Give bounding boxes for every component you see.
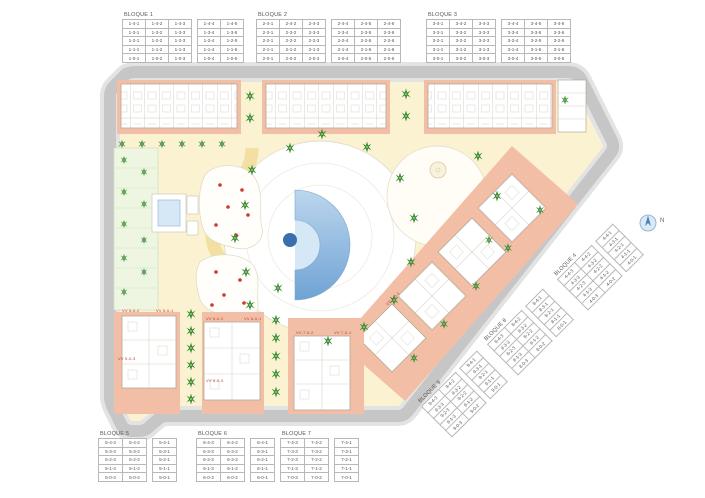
unit-cell: 3-2-5 [525, 37, 548, 46]
unit-cell: 1-3-2 [146, 28, 169, 37]
north-label: N [660, 218, 664, 224]
unit-table: 2-4-12-4-22-4-32-3-12-3-22-3-32-2-12-2-2… [256, 19, 326, 63]
unit-cell: 3-0-1 [427, 54, 450, 63]
unit-cell: 1-4-1 [123, 20, 146, 29]
unit-cell: 7-0-2 [305, 473, 329, 482]
unit-cell: 2-4-6 [378, 20, 401, 29]
unit-cell: 5-3-1 [153, 447, 177, 456]
unit-cell: 2-1-4 [332, 45, 355, 54]
unit-cell: 7-3-2 [305, 447, 329, 456]
unit-cell: 1-0-3 [169, 54, 192, 63]
unit-cell: 5-2-3 [99, 456, 123, 465]
unit-cell: 2-4-4 [332, 20, 355, 29]
unit-cell: 5-2-2 [123, 456, 147, 465]
unit-cell: 3-1-2 [450, 45, 473, 54]
unit-cell: 1-4-2 [146, 20, 169, 29]
unit-cell: 7-4-3 [281, 439, 305, 448]
block-title: BLOQUE 3 [428, 12, 571, 18]
unit-cell: 3-4-4 [502, 20, 525, 29]
unit-cell: 1-1-4 [198, 45, 221, 54]
unit-label: VV 6-0-3 [206, 378, 223, 383]
bloque-3-building [428, 84, 552, 128]
unit-cell: 2-1-3 [303, 45, 326, 54]
unit-cell: 3-4-6 [548, 20, 571, 29]
block-title: BLOQUE 2 [258, 12, 401, 18]
unit-cell: 1-0-1 [123, 54, 146, 63]
unit-cell: 3-1-6 [548, 45, 571, 54]
unit-cell: 1-4-3 [169, 20, 192, 29]
unit-cell: 6-0-2 [221, 473, 245, 482]
unit-cell: 5-4-3 [99, 439, 123, 448]
unit-cell: 2-2-6 [378, 37, 401, 46]
unit-cell: 5-3-3 [99, 447, 123, 456]
unit-table: 6-4-36-4-26-3-36-3-26-2-36-2-26-1-36-1-2… [196, 438, 245, 482]
unit-cell: 3-0-5 [525, 54, 548, 63]
unit-cell: 3-3-3 [473, 28, 496, 37]
block-title: BLOQUE 6 [198, 431, 275, 437]
unit-cell: 6-4-1 [251, 439, 275, 448]
small-pool [158, 200, 180, 226]
unit-cell: 3-0-4 [502, 54, 525, 63]
unit-cell: 3-0-3 [473, 54, 496, 63]
unit-cell: 2-0-5 [355, 54, 378, 63]
bloque-6-building [204, 322, 260, 400]
bloque-1-building [121, 84, 237, 128]
unit-cell: 2-4-3 [303, 20, 326, 29]
unit-cell: 1-0-2 [146, 54, 169, 63]
unit-cell: 1-0-4 [198, 54, 221, 63]
unit-cell: 2-1-6 [378, 45, 401, 54]
unit-cell: 6-2-1 [251, 456, 275, 465]
unit-cell: 5-0-2 [123, 473, 147, 482]
unit-cell: 6-2-2 [221, 456, 245, 465]
unit-cell: 6-2-3 [197, 456, 221, 465]
unit-cell: 6-1-1 [251, 464, 275, 473]
bottom-building-plots [114, 312, 364, 414]
compass-icon [638, 212, 678, 234]
bloque-6-table: BLOQUE 66-4-36-4-26-3-36-3-26-2-36-2-26-… [196, 431, 275, 482]
unit-cell: 5-3-2 [123, 447, 147, 456]
unit-cell: 2-3-5 [355, 28, 378, 37]
unit-cell: 2-3-4 [332, 28, 355, 37]
bloque-2-table: BLOQUE 22-4-12-4-22-4-32-3-12-3-22-3-32-… [256, 12, 401, 63]
unit-cell: 1-4-5 [221, 20, 244, 29]
unit-cell: 2-0-2 [280, 54, 303, 63]
unit-table: 6-4-16-3-16-2-16-1-16-0-1 [250, 438, 275, 482]
unit-cell: 7-1-3 [281, 464, 305, 473]
unit-table: 5-4-35-4-25-3-35-3-25-2-35-2-25-1-35-1-2… [98, 438, 147, 482]
unit-cell: 7-0-1 [335, 473, 359, 482]
unit-cell: 6-3-2 [221, 447, 245, 456]
unit-cell: 3-2-3 [473, 37, 496, 46]
unit-cell: 3-2-6 [548, 37, 571, 46]
unit-cell: 1-3-3 [169, 28, 192, 37]
unit-cell: 1-3-1 [123, 28, 146, 37]
unit-cell: 6-4-2 [221, 439, 245, 448]
unit-cell: 3-0-6 [548, 54, 571, 63]
unit-cell: 3-1-3 [473, 45, 496, 54]
unit-label: VV 5-0-2 [122, 308, 139, 313]
unit-cell: 6-3-3 [197, 447, 221, 456]
unit-label: VV 7-0-2 [296, 330, 313, 335]
unit-label: VV 7-0-1 [334, 330, 351, 335]
bloque-1-table: BLOQUE 11-4-11-4-21-4-31-3-11-3-21-3-31-… [122, 12, 244, 63]
unit-label: VV 6-0-1 [244, 316, 261, 321]
unit-label: VV 5-0-3 [118, 356, 135, 361]
unit-cell: 1-2-5 [221, 37, 244, 46]
north-compass: N [638, 212, 678, 234]
unit-cell: 1-2-2 [146, 37, 169, 46]
unit-cell: 2-1-5 [355, 45, 378, 54]
unit-cell: 1-0-5 [221, 54, 244, 63]
unit-cell: 1-1-5 [221, 45, 244, 54]
unit-table: 5-4-15-3-15-2-15-1-15-0-1 [152, 438, 177, 482]
unit-cell: 6-0-3 [197, 473, 221, 482]
bloque-7-table: BLOQUE 77-4-37-4-27-3-37-3-27-2-37-2-27-… [280, 431, 359, 482]
unit-cell: 2-2-2 [280, 37, 303, 46]
unit-cell: 1-4-4 [198, 20, 221, 29]
unit-label: VV 5-0-1 [156, 308, 173, 313]
unit-cell: 6-4-3 [197, 439, 221, 448]
unit-cell: 3-3-4 [502, 28, 525, 37]
unit-cell: 6-1-3 [197, 464, 221, 473]
unit-cell: 2-0-4 [332, 54, 355, 63]
unit-cell: 2-2-1 [257, 37, 280, 46]
block-title: BLOQUE 1 [124, 12, 244, 18]
unit-cell: 5-4-2 [123, 439, 147, 448]
unit-cell: 5-0-1 [153, 473, 177, 482]
unit-cell: 2-3-1 [257, 28, 280, 37]
block-title: BLOQUE 5 [100, 431, 177, 437]
unit-cell: 3-2-1 [427, 37, 450, 46]
unit-cell: 7-1-1 [335, 464, 359, 473]
unit-table: 1-4-41-4-51-3-41-3-51-2-41-2-51-1-41-1-5… [197, 19, 244, 63]
bloque-2-building [266, 84, 386, 128]
unit-cell: 3-1-5 [525, 45, 548, 54]
unit-cell: 2-2-4 [332, 37, 355, 46]
site-plan-canvas: BLOQUE 11-4-11-4-21-4-31-3-11-3-21-3-31-… [0, 0, 705, 498]
unit-cell: 1-1-3 [169, 45, 192, 54]
unit-cell: 6-3-1 [251, 447, 275, 456]
unit-cell: 3-3-2 [450, 28, 473, 37]
unit-cell: 2-3-2 [280, 28, 303, 37]
unit-cell: 7-2-2 [305, 456, 329, 465]
unit-cell: 5-0-3 [99, 473, 123, 482]
unit-cell: 2-2-3 [303, 37, 326, 46]
jacuzzi-circle [283, 233, 297, 247]
bloque-5-table: BLOQUE 55-4-35-4-25-3-35-3-25-2-35-2-25-… [98, 431, 177, 482]
unit-cell: 1-2-1 [123, 37, 146, 46]
unit-cell: 7-4-1 [335, 439, 359, 448]
unit-cell: 5-1-3 [99, 464, 123, 473]
top-building-plots [117, 80, 586, 134]
unit-cell: 7-3-3 [281, 447, 305, 456]
unit-cell: 7-0-3 [281, 473, 305, 482]
unit-label: VV 6-0-2 [206, 316, 223, 321]
unit-cell: 7-4-2 [305, 439, 329, 448]
unit-table: 2-4-42-4-52-4-62-3-42-3-52-3-62-2-42-2-5… [331, 19, 401, 63]
unit-cell: 3-2-4 [502, 37, 525, 46]
unit-cell: 5-4-1 [153, 439, 177, 448]
unit-cell: 3-3-5 [525, 28, 548, 37]
unit-cell: 7-2-3 [281, 456, 305, 465]
unit-cell: 1-1-1 [123, 45, 146, 54]
unit-cell: 3-0-2 [450, 54, 473, 63]
bloque-7-building [294, 336, 350, 410]
unit-cell: 3-4-5 [525, 20, 548, 29]
unit-cell: 6-1-2 [221, 464, 245, 473]
unit-cell: 7-1-2 [305, 464, 329, 473]
unit-table: 1-4-11-4-21-4-31-3-11-3-21-3-31-2-11-2-2… [122, 19, 192, 63]
unit-cell: 1-2-4 [198, 37, 221, 46]
unit-table: 7-4-17-3-17-2-17-1-17-0-1 [334, 438, 359, 482]
unit-cell: 3-3-6 [548, 28, 571, 37]
unit-cell: 5-2-1 [153, 456, 177, 465]
unit-cell: 3-4-3 [473, 20, 496, 29]
unit-cell: 3-4-1 [427, 20, 450, 29]
unit-cell: 2-3-3 [303, 28, 326, 37]
unit-table: 3-4-43-4-53-4-63-3-43-3-53-3-63-2-43-2-5… [501, 19, 571, 63]
unit-cell: 2-3-6 [378, 28, 401, 37]
unit-table: 7-4-37-4-27-3-37-3-27-2-37-2-27-1-37-1-2… [280, 438, 329, 482]
unit-cell: 3-4-2 [450, 20, 473, 29]
unit-cell: 2-4-2 [280, 20, 303, 29]
unit-cell: 2-4-5 [355, 20, 378, 29]
unit-cell: 6-0-1 [251, 473, 275, 482]
unit-cell: 2-0-1 [257, 54, 280, 63]
unit-cell: 5-1-1 [153, 464, 177, 473]
unit-cell: 2-0-3 [303, 54, 326, 63]
unit-cell: 1-2-3 [169, 37, 192, 46]
unit-cell: 3-3-1 [427, 28, 450, 37]
unit-cell: 7-2-1 [335, 456, 359, 465]
unit-cell: 2-4-1 [257, 20, 280, 29]
unit-cell: 3-1-4 [502, 45, 525, 54]
bloque-5-building [122, 316, 176, 388]
unit-cell: 3-1-1 [427, 45, 450, 54]
unit-cell: 7-3-1 [335, 447, 359, 456]
unit-cell: 2-2-5 [355, 37, 378, 46]
block-title: BLOQUE 7 [282, 431, 359, 437]
unit-cell: 1-3-4 [198, 28, 221, 37]
unit-cell: 3-2-2 [450, 37, 473, 46]
unit-cell: 1-1-2 [146, 45, 169, 54]
unit-cell: 5-1-2 [123, 464, 147, 473]
unit-cell: 2-0-6 [378, 54, 401, 63]
unit-cell: 2-1-2 [280, 45, 303, 54]
bloque-3-table: BLOQUE 33-4-13-4-23-4-33-3-13-3-23-3-33-… [426, 12, 571, 63]
unit-cell: 2-1-1 [257, 45, 280, 54]
unit-cell: 1-3-5 [221, 28, 244, 37]
unit-table: 3-4-13-4-23-4-33-3-13-3-23-3-33-2-13-2-2… [426, 19, 496, 63]
